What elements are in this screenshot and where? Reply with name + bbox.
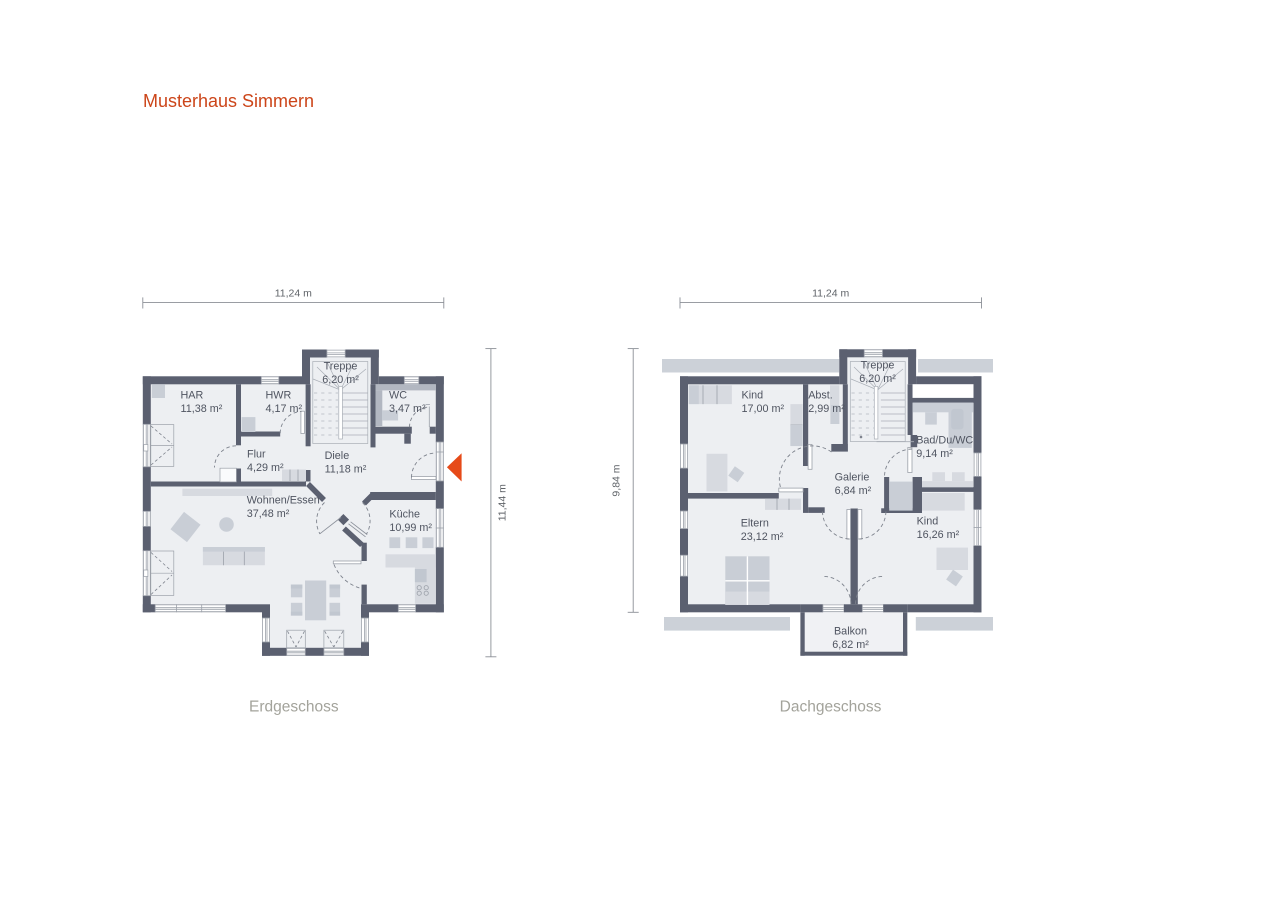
- svg-text:Kind: Kind: [917, 516, 939, 528]
- svg-text:Eltern: Eltern: [741, 518, 769, 530]
- svg-text:Bad/Du/WC: Bad/Du/WC: [916, 435, 973, 447]
- svg-text:9,84 m: 9,84 m: [611, 464, 623, 496]
- svg-text:11,18 m²: 11,18 m²: [325, 463, 367, 475]
- svg-text:6,82 m²: 6,82 m²: [832, 639, 869, 651]
- svg-text:WC: WC: [389, 390, 407, 402]
- svg-text:17,00 m²: 17,00 m²: [742, 403, 785, 415]
- svg-text:11,24 m: 11,24 m: [812, 288, 849, 300]
- svg-text:4,17 m²: 4,17 m²: [266, 403, 303, 415]
- svg-text:11,24 m: 11,24 m: [275, 288, 312, 300]
- svg-text:11,44 m: 11,44 m: [497, 484, 509, 521]
- svg-text:HWR: HWR: [266, 390, 292, 402]
- svg-text:Treppe: Treppe: [324, 361, 358, 373]
- svg-text:Kind: Kind: [742, 390, 764, 402]
- svg-text:9,14 m²: 9,14 m²: [916, 448, 953, 460]
- svg-text:37,48 m²: 37,48 m²: [247, 508, 290, 520]
- svg-text:Erdgeschoss: Erdgeschoss: [249, 699, 339, 716]
- svg-text:4,29 m²: 4,29 m²: [247, 462, 284, 474]
- svg-text:23,12 m²: 23,12 m²: [741, 531, 784, 543]
- svg-text:6,20 m²: 6,20 m²: [859, 373, 896, 385]
- svg-text:Dachgeschoss: Dachgeschoss: [780, 699, 882, 716]
- svg-text:Abst.: Abst.: [808, 390, 833, 402]
- svg-text:Musterhaus Simmern: Musterhaus Simmern: [143, 91, 314, 111]
- svg-text:Treppe: Treppe: [861, 360, 895, 372]
- svg-text:Galerie: Galerie: [835, 472, 870, 484]
- svg-text:Wohnen/Essen: Wohnen/Essen: [247, 495, 320, 507]
- svg-text:6,84 m²: 6,84 m²: [835, 485, 872, 497]
- svg-text:2,99 m²: 2,99 m²: [808, 403, 845, 415]
- svg-text:10,99 m²: 10,99 m²: [389, 522, 432, 534]
- svg-text:Flur: Flur: [247, 449, 266, 461]
- svg-text:16,26 m²: 16,26 m²: [917, 529, 960, 541]
- svg-text:6,20 m²: 6,20 m²: [322, 374, 359, 386]
- svg-text:Diele: Diele: [325, 450, 350, 462]
- svg-text:Küche: Küche: [389, 509, 420, 521]
- svg-text:3,47 m²: 3,47 m²: [389, 403, 426, 415]
- svg-text:11,38 m²: 11,38 m²: [181, 403, 223, 415]
- svg-text:Balkon: Balkon: [834, 626, 867, 638]
- svg-text:HAR: HAR: [181, 390, 204, 402]
